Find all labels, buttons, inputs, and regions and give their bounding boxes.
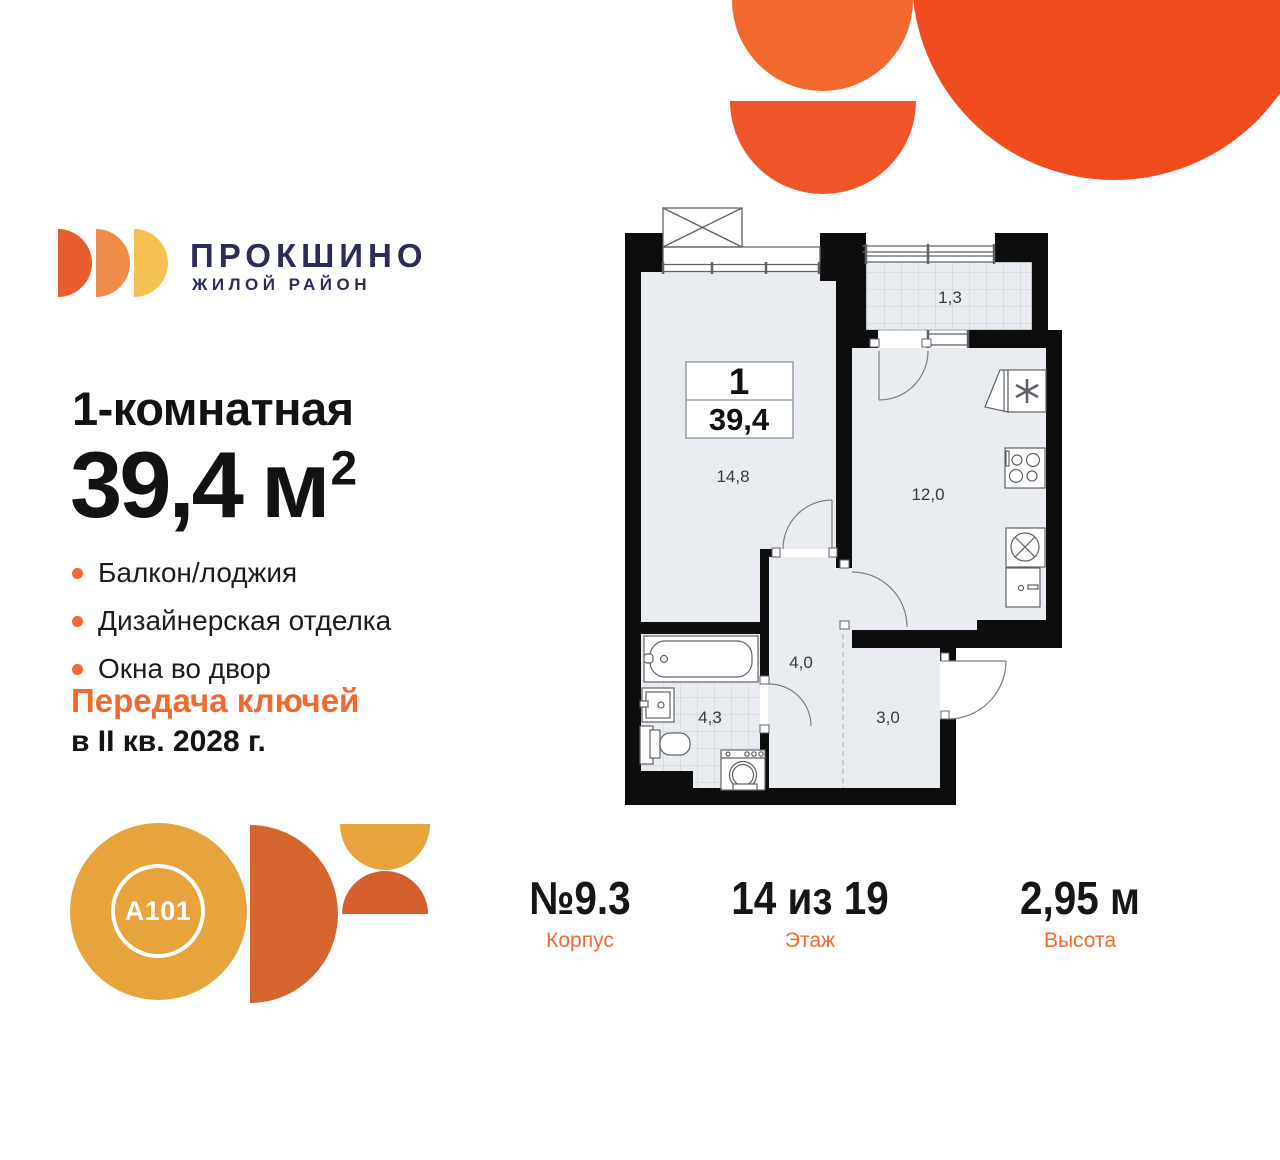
stat-ceiling-height: 2,95 м Высота [1012,871,1148,953]
list-item: Балкон/лоджия [72,549,391,597]
stat-ceiling-height-label: Высота [1012,929,1148,953]
room-label-kitchen: 12,0 [911,485,944,504]
feature-label: Балкон/лоджия [98,557,297,589]
area-value: 39,4 [70,432,241,537]
room-label-living: 14,8 [716,467,749,486]
bullet-dot-icon [72,616,83,627]
toilet-icon [650,730,660,758]
room-label-entry: 3,0 [876,708,900,727]
room-label-hallway: 4,0 [789,653,813,672]
list-item: Дизайнерская отделка [72,597,391,645]
total-area: 39,4 [709,402,770,437]
stat-ceiling-height-value: 2,95 м [1020,871,1140,925]
a101-badge: A101 [111,864,205,958]
floor-plan: 1 39,4 14,8 12,0 1,3 4,0 3,0 4,3 [610,195,1070,815]
washing-machine-icon [721,750,765,790]
stat-floor-label: Этаж [720,929,899,953]
feature-label: Дизайнерская отделка [98,605,391,637]
logo-disc-icon [96,229,130,297]
bullet-dot-icon [72,664,83,675]
a101-hourglass-top-icon [340,824,430,870]
stat-building-label: Корпус [522,929,637,953]
area-unit: м2 [261,432,357,537]
a101-badge-text: A101 [125,896,192,927]
bullet-dot-icon [72,568,83,579]
area-headline: 39,4м2 [70,438,357,532]
deco-semicircle-small-icon [732,0,913,91]
plan-info-box: 1 39,4 [686,361,793,438]
deco-circle-large-icon [912,0,1280,180]
stat-floor: 14 из 19 Этаж [720,871,899,953]
room-label-loggia: 1,3 [938,288,962,307]
deco-semicircle-medium-icon [730,101,916,194]
stat-building-value: №9.3 [529,871,630,925]
brand-name: ПРОКШИНО [190,237,427,275]
feature-label: Окна во двор [98,653,271,685]
flyer-canvas: ПРОКШИНО ЖИЛОЙ РАЙОН 1-комнатная 39,4м2 … [0,0,1280,1160]
entrance-door-arc [948,661,1006,719]
page-title: 1-комнатная [72,381,354,436]
a101-hourglass-bottom-icon [342,871,428,914]
handover-title: Передача ключей [71,682,359,720]
brand-tagline: ЖИЛОЙ РАЙОН [192,275,371,295]
stove-icon [1005,448,1045,488]
room-label-bathroom: 4,3 [698,708,722,727]
handover-term: в II кв. 2028 г. [71,725,266,759]
a101-halfdisc-icon [250,825,338,1003]
dishwasher-icon [1006,528,1045,567]
stat-floor-value: 14 из 19 [731,871,889,925]
sink-cabinet-icon [1006,568,1040,607]
area-exponent: 2 [331,443,358,496]
rooms-count: 1 [729,361,750,402]
logo-disc-icon [58,229,92,297]
stat-building: №9.3 Корпус [522,871,637,953]
logo-disc-icon [134,229,168,297]
features-list: Балкон/лоджия Дизайнерская отделка Окна … [72,549,391,693]
